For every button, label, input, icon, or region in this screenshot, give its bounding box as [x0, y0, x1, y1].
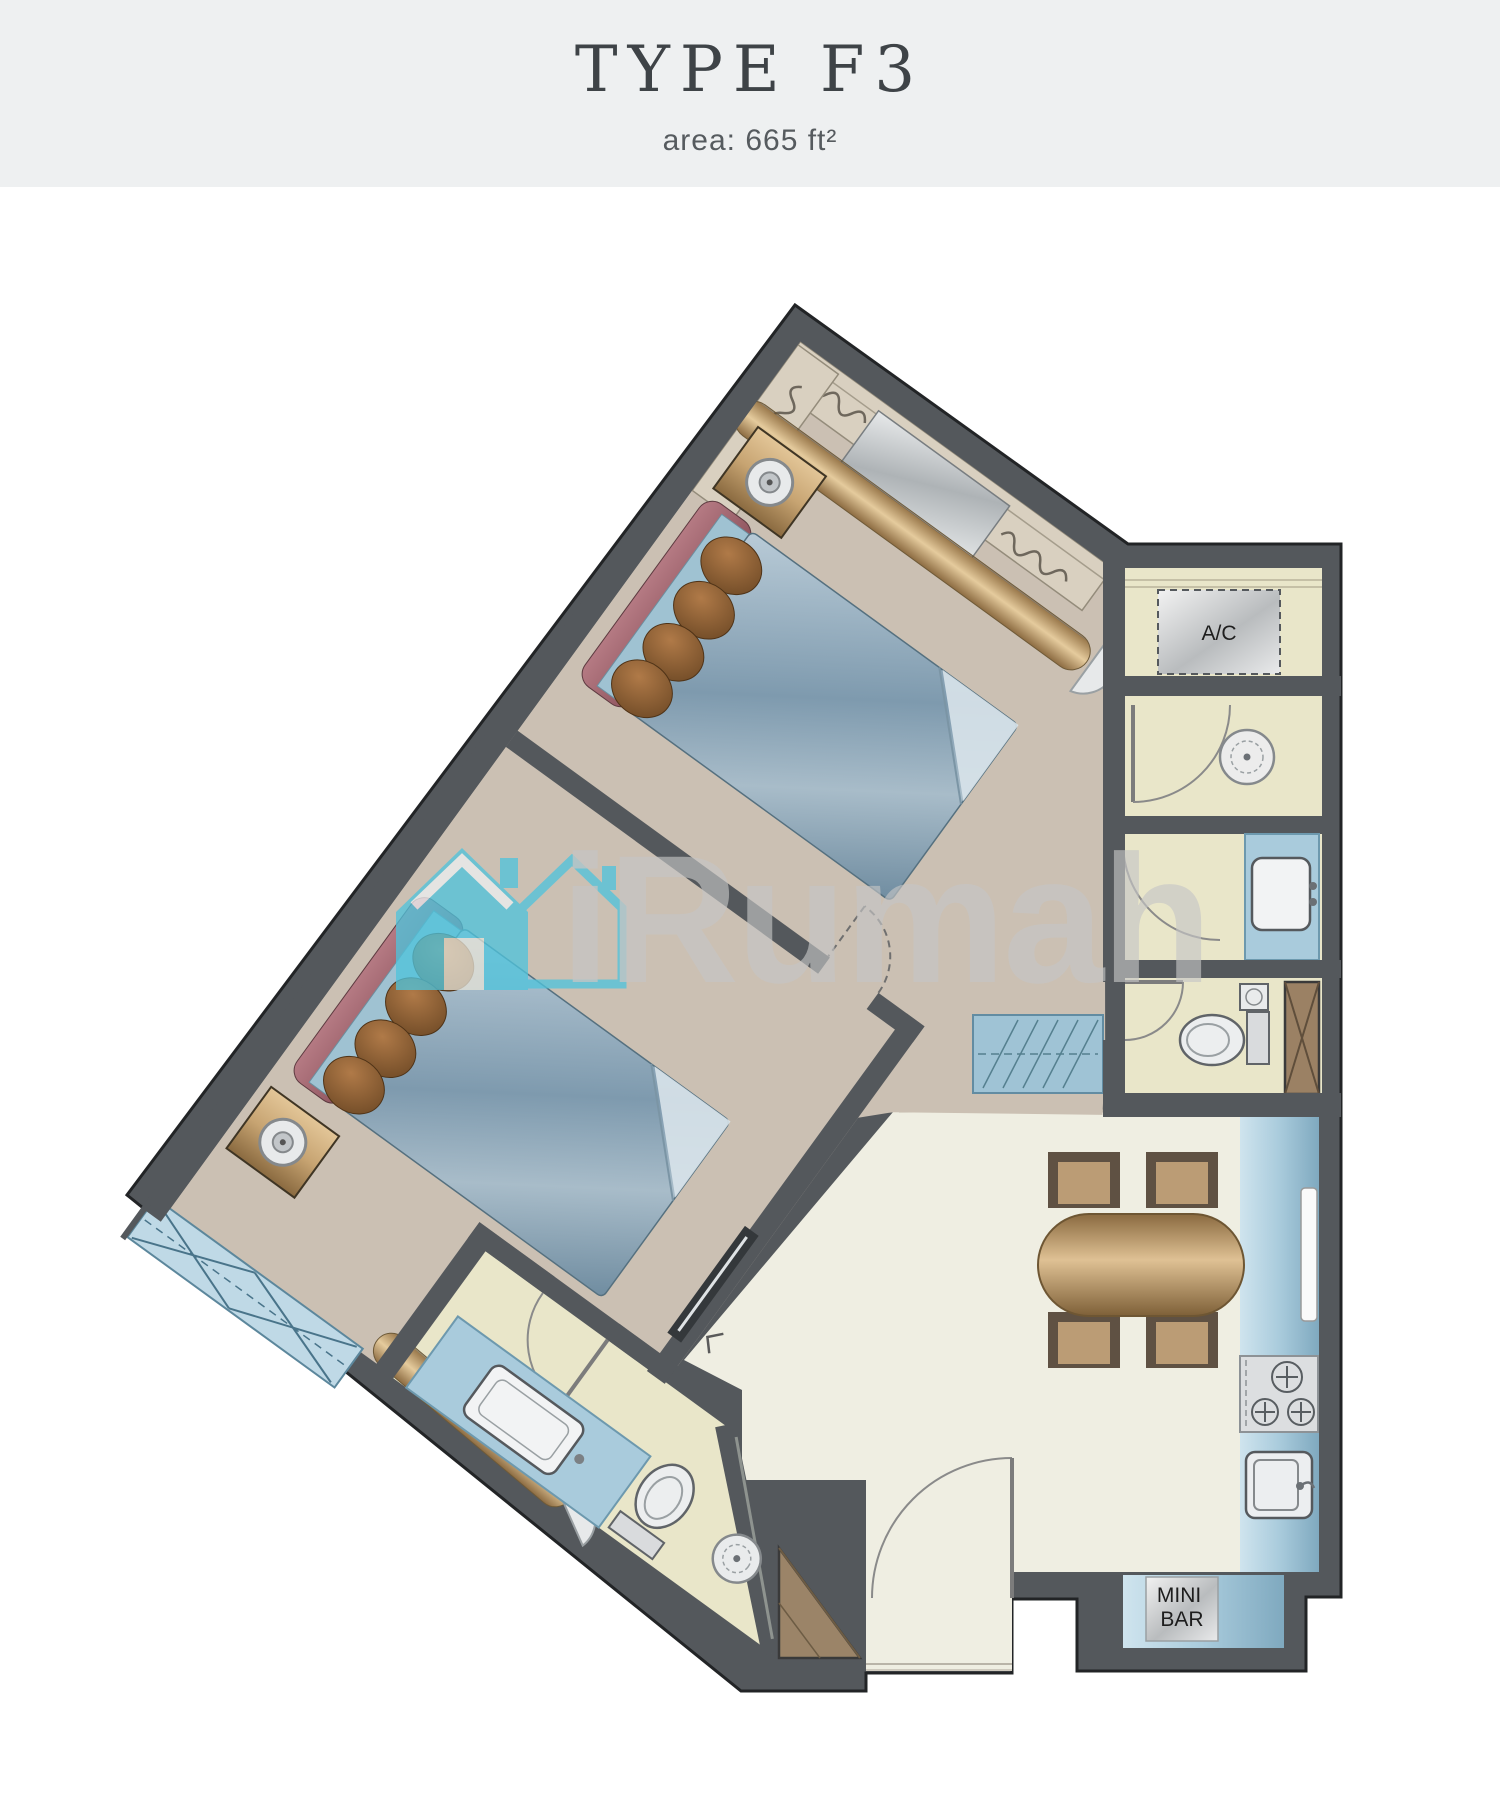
entry-recess-floor	[866, 1599, 1012, 1669]
chair-seat	[1058, 1162, 1110, 1204]
wall-block-left-b	[1103, 1040, 1125, 1117]
wall-under-ac	[1125, 676, 1296, 696]
corridor-closet	[973, 1015, 1103, 1093]
ac-label: A/C	[1201, 622, 1236, 645]
chair-seat	[1156, 1162, 1208, 1204]
faucet-2b	[1309, 898, 1317, 906]
toilet-2-tank	[1247, 1012, 1269, 1064]
fridge	[1301, 1188, 1317, 1321]
faucet-2a	[1309, 882, 1317, 890]
house-door	[444, 938, 484, 990]
watermark-text: iRumah	[560, 817, 1209, 1021]
wall-block-bottom	[1103, 1093, 1341, 1117]
chair-seat	[1058, 1322, 1110, 1364]
toilet-2-bowl	[1180, 1015, 1244, 1065]
chair-seat	[1156, 1322, 1208, 1364]
minibar-label: MINI BAR	[1157, 1584, 1207, 1631]
sink-2	[1252, 858, 1310, 930]
hand-basin	[1240, 984, 1268, 1010]
dining-table	[1038, 1214, 1244, 1316]
floor-plan: A/C	[0, 0, 1500, 1800]
house-chimney	[500, 858, 518, 888]
water-heater-dot	[1244, 754, 1251, 761]
wall-under-ac-b	[1317, 676, 1341, 696]
cooktop	[1240, 1356, 1318, 1432]
